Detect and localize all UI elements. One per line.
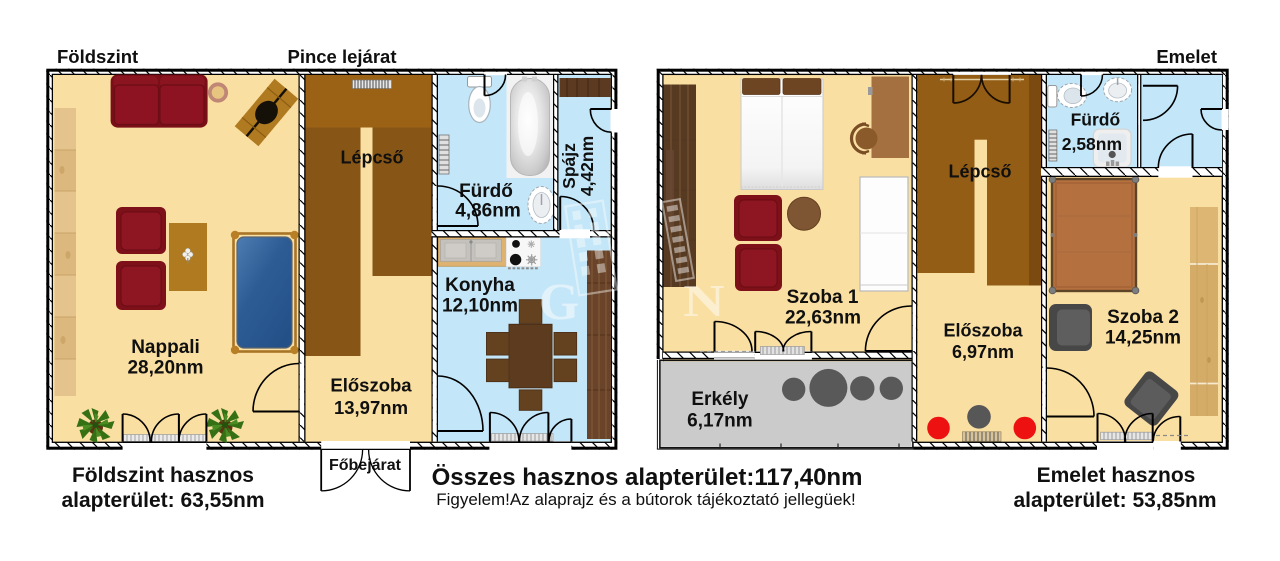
svg-text:22,63nm: 22,63nm <box>785 308 861 329</box>
svg-text:N: N <box>683 276 725 326</box>
svg-text:alapterület: 63,55nm: alapterület: 63,55nm <box>61 489 264 512</box>
svg-text:Földszint: Földszint <box>57 46 138 67</box>
svg-text:6,17nm: 6,17nm <box>687 411 752 432</box>
svg-text:Lépcső: Lépcső <box>948 162 1011 182</box>
svg-text:Fürdő: Fürdő <box>1071 109 1121 129</box>
svg-text:4,86nm: 4,86nm <box>455 201 520 222</box>
svg-text:Emelet: Emelet <box>1156 46 1217 67</box>
svg-text:G: G <box>539 274 579 331</box>
svg-text:Pince lejárat: Pince lejárat <box>287 46 396 67</box>
svg-text:Nappali: Nappali <box>131 337 200 358</box>
svg-text:Emelet hasznos: Emelet hasznos <box>1037 464 1196 487</box>
svg-text:6,97nm: 6,97nm <box>952 342 1014 362</box>
svg-text:Spájz: Spájz <box>559 143 579 189</box>
svg-text:28,20nm: 28,20nm <box>127 358 203 379</box>
svg-text:Földszint hasznos: Földszint hasznos <box>72 464 254 487</box>
svg-text:4,42nm: 4,42nm <box>577 136 597 196</box>
svg-text:alapterület: 53,85nm: alapterület: 53,85nm <box>1013 489 1216 512</box>
svg-text:Lépcső: Lépcső <box>340 148 403 168</box>
svg-text:12,10nm: 12,10nm <box>442 296 518 317</box>
svg-text:Konyha: Konyha <box>445 275 515 296</box>
svg-text:Erkély: Erkély <box>691 389 748 410</box>
svg-text:Szoba 1: Szoba 1 <box>787 287 859 308</box>
svg-text:Főbejárat: Főbejárat <box>329 457 402 474</box>
svg-text:14,25nm: 14,25nm <box>1105 328 1181 349</box>
svg-text:Figyelem!Az alaprajz és a búto: Figyelem!Az alaprajz és a bútorok tájéko… <box>436 490 856 509</box>
svg-text:Előszoba: Előszoba <box>330 375 412 396</box>
svg-text:2,58nm: 2,58nm <box>1062 134 1122 154</box>
svg-text:Előszoba: Előszoba <box>943 321 1023 341</box>
svg-text:Összes hasznos alapterület:117: Összes hasznos alapterület:117,40nm <box>432 464 863 491</box>
svg-text:13,97nm: 13,97nm <box>334 397 408 418</box>
svg-text:Szoba 2: Szoba 2 <box>1107 307 1179 328</box>
